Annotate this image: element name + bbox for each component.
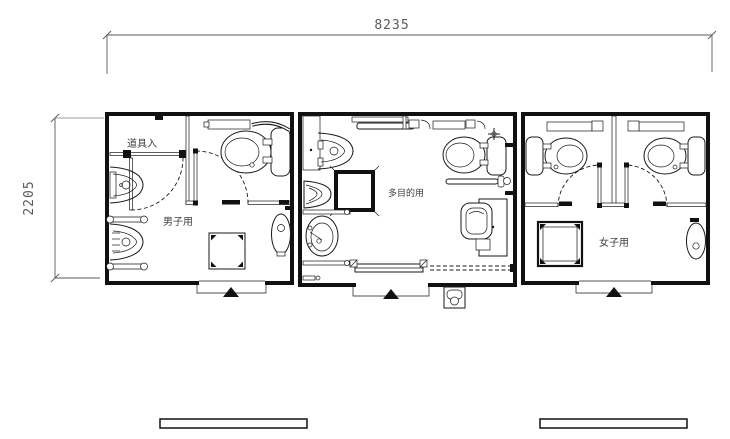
partition xyxy=(600,203,625,207)
door-leaf xyxy=(194,152,197,202)
shelf xyxy=(547,122,592,131)
floor-drain-icon xyxy=(209,233,245,269)
entrance-marker-icon xyxy=(606,287,622,297)
shelf xyxy=(433,121,465,129)
room-label-womens: 女子用 xyxy=(599,236,629,249)
shelf xyxy=(208,120,250,129)
toilet-icon xyxy=(526,137,587,175)
partition xyxy=(403,116,406,129)
floor-plan: 8235 2205 xyxy=(0,0,730,439)
partition xyxy=(667,203,706,207)
lavatory-icon xyxy=(306,216,338,256)
door-leaf xyxy=(598,166,601,206)
partition xyxy=(612,116,616,206)
closet-label: 道具入 xyxy=(127,137,157,150)
shelf xyxy=(352,117,408,122)
shelf xyxy=(639,122,684,131)
entrance-marker-icon xyxy=(223,287,239,297)
entrance-multipurpose xyxy=(353,287,429,299)
door-leaf xyxy=(625,166,628,206)
room-label-mens: 男子用 xyxy=(163,216,193,228)
floor-drain-icon xyxy=(538,222,582,266)
bench-left xyxy=(160,419,307,428)
grab-bar xyxy=(303,210,350,214)
bench-right xyxy=(540,419,687,428)
toilet-icon xyxy=(644,137,705,175)
grab-bar xyxy=(303,261,350,265)
toilet-icon xyxy=(221,128,290,176)
dimension-top: 8235 xyxy=(103,18,716,74)
dimension-left: 2205 xyxy=(22,114,104,282)
dimension-depth-label: 2205 xyxy=(22,180,37,215)
slop-sink-icon xyxy=(444,287,465,308)
partition xyxy=(525,203,558,207)
partition xyxy=(186,116,189,204)
dimension-width-label: 8235 xyxy=(374,18,409,33)
toilet-icon xyxy=(443,137,506,175)
counter xyxy=(303,116,320,170)
entrance-marker-icon xyxy=(383,289,399,299)
room-label-multipurpose: 多目的用 xyxy=(388,187,424,199)
shower-pan-icon xyxy=(330,166,379,216)
